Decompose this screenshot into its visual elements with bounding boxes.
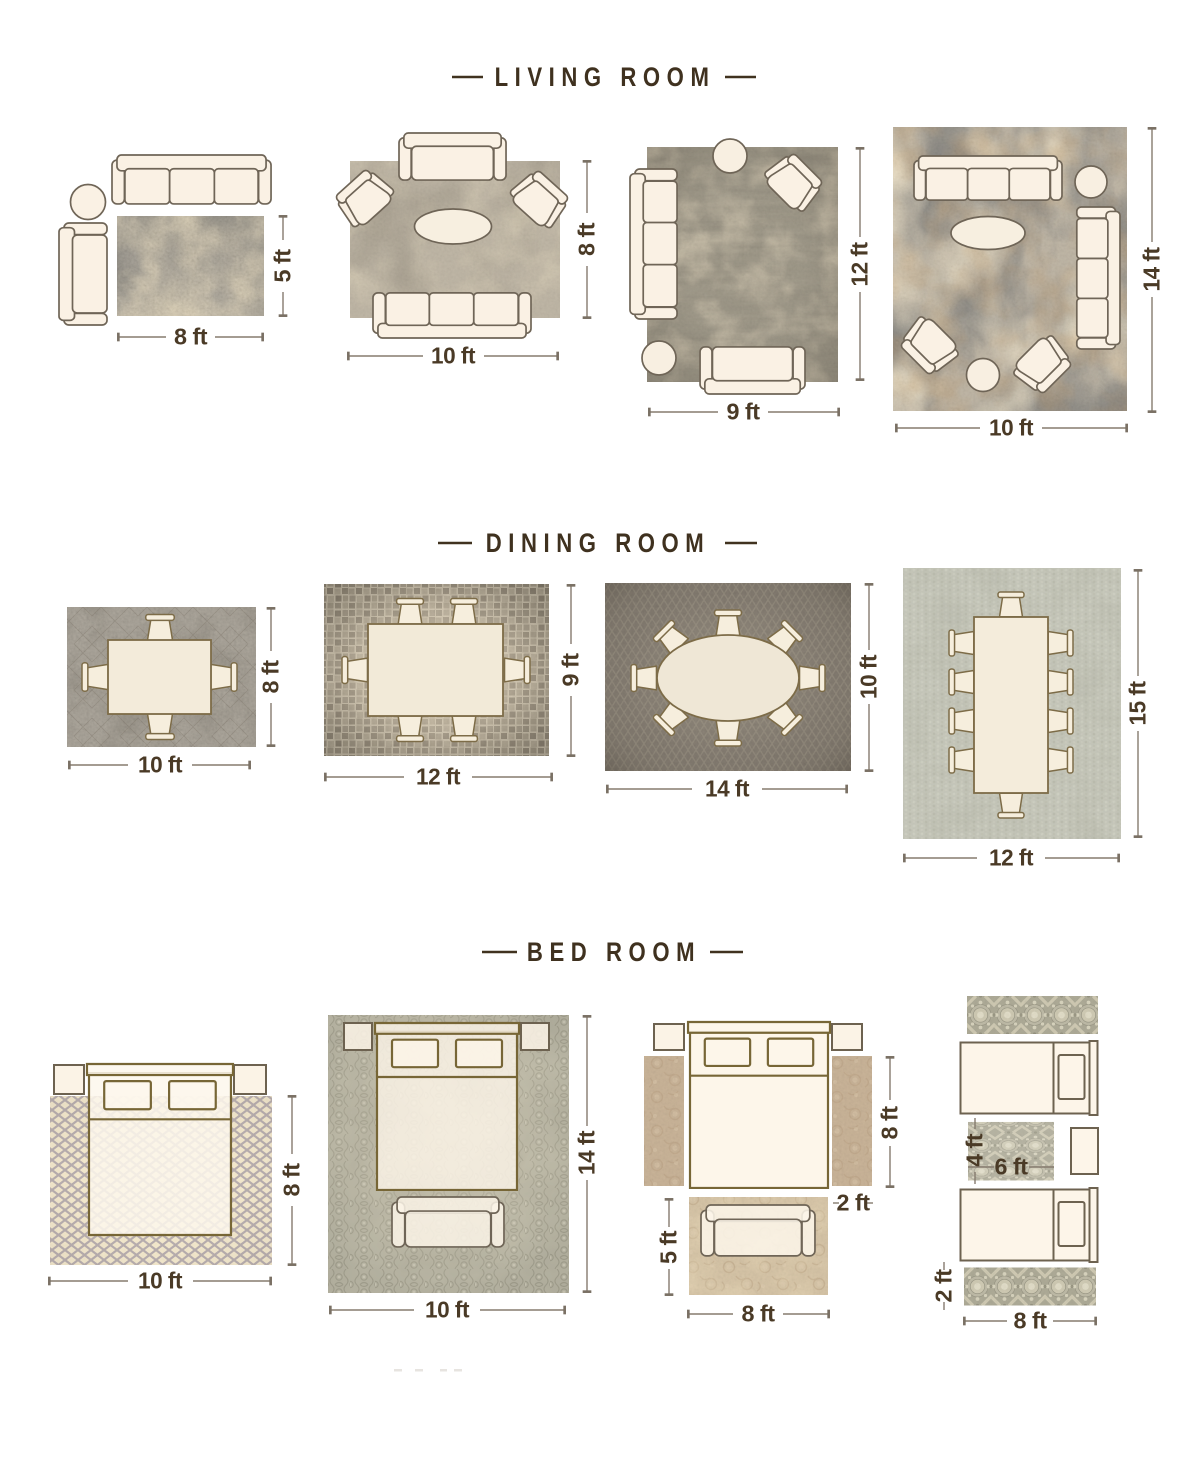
svg-text:5 ft: 5 ft [270,249,296,283]
svg-text:2 ft: 2 ft [931,1269,957,1303]
svg-text:12 ft: 12 ft [989,845,1034,871]
svg-text:14 ft: 14 ft [1139,247,1165,292]
svg-text:10 ft: 10 ft [138,752,183,778]
svg-text:9 ft: 9 ft [558,653,584,687]
svg-text:12 ft: 12 ft [416,764,461,790]
svg-text:8 ft: 8 ft [174,324,208,350]
svg-text:10 ft: 10 ft [431,343,476,369]
svg-text:10 ft: 10 ft [425,1297,470,1323]
svg-text:DINING ROOM: DINING ROOM [486,529,711,559]
svg-text:LIVING ROOM: LIVING ROOM [495,63,716,93]
svg-text:10 ft: 10 ft [989,415,1034,441]
svg-text:9 ft: 9 ft [727,399,761,425]
svg-text:BED ROOM: BED ROOM [527,938,701,968]
svg-text:8 ft: 8 ft [258,660,284,694]
svg-text:12 ft: 12 ft [847,242,873,287]
svg-text:15 ft: 15 ft [1125,681,1151,726]
svg-text:8 ft: 8 ft [574,222,600,256]
svg-text:10 ft: 10 ft [856,654,882,699]
svg-text:14 ft: 14 ft [705,776,750,802]
svg-text:8 ft: 8 ft [877,1106,903,1140]
svg-text:4 ft: 4 ft [962,1133,988,1167]
svg-text:8 ft: 8 ft [279,1163,305,1197]
svg-text:10 ft: 10 ft [138,1268,183,1294]
svg-text:2 ft: 2 ft [837,1190,871,1216]
svg-text:5 ft: 5 ft [656,1230,682,1264]
svg-text:14 ft: 14 ft [574,1130,600,1175]
svg-text:8 ft: 8 ft [1014,1308,1048,1334]
svg-text:8 ft: 8 ft [742,1301,776,1327]
svg-text:6 ft: 6 ft [995,1154,1029,1180]
